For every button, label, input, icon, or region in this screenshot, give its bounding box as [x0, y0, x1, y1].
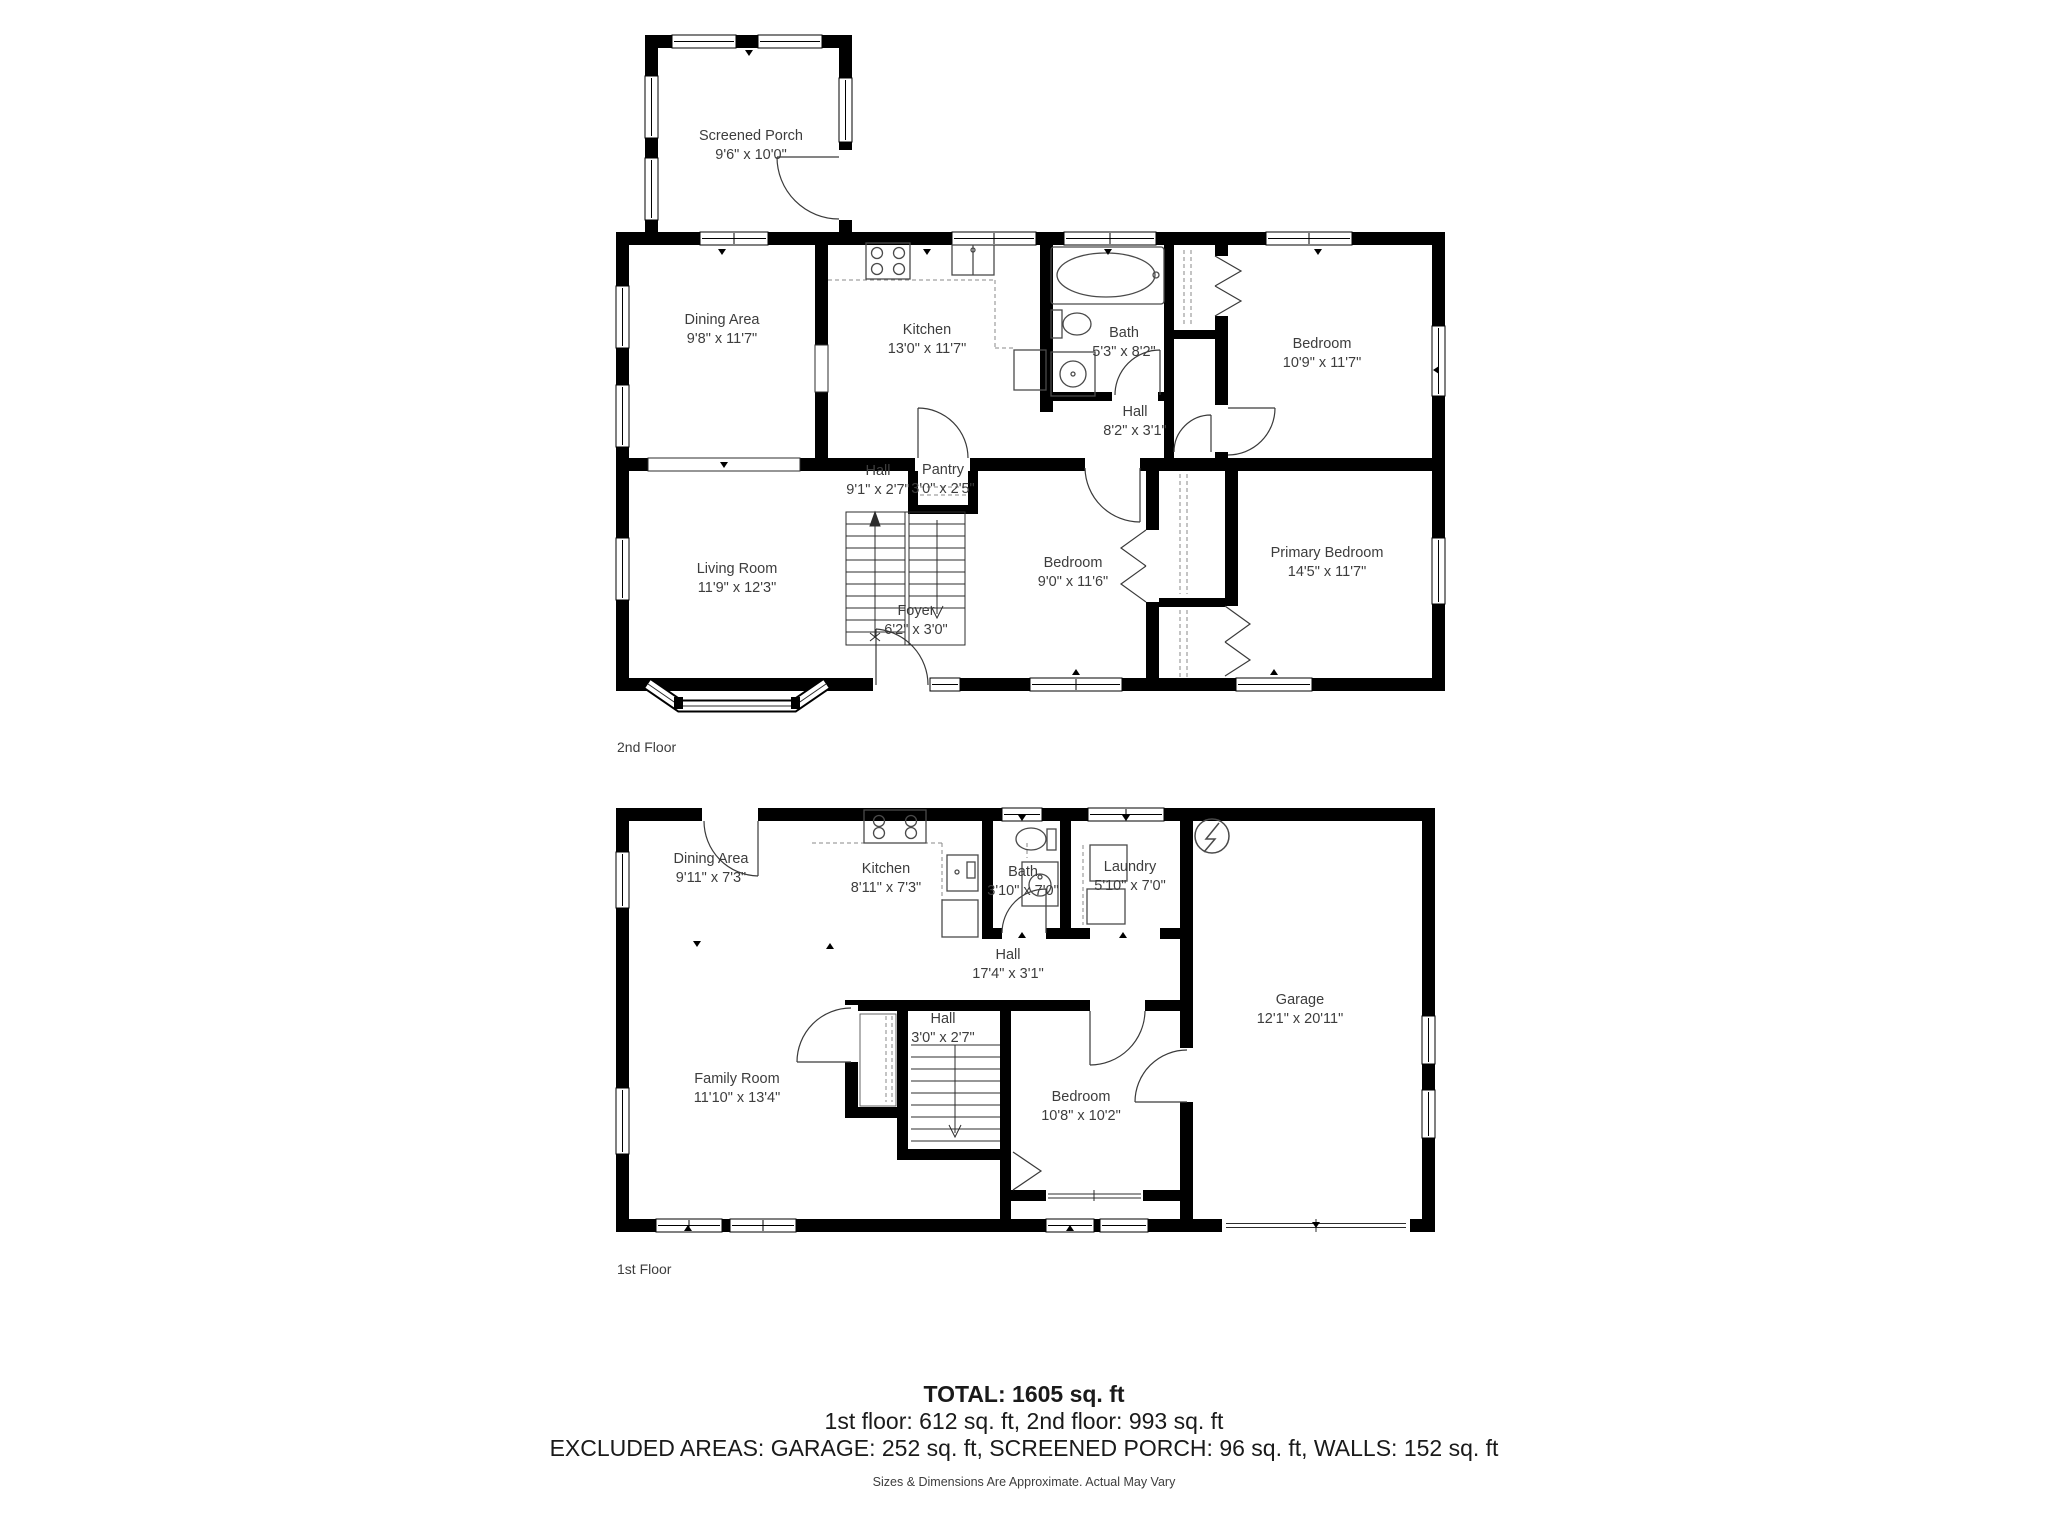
floor-areas: 1st floor: 612 sq. ft, 2nd floor: 993 sq… — [0, 1408, 2048, 1434]
room-label-kitchen-1: Kitchen 8'11" x 7'3" — [851, 860, 921, 898]
room-label-dining-area-1: Dining Area 9'11" x 7'3" — [674, 850, 749, 888]
room-label-dining-area-2: Dining Area 9'8" x 11'7" — [685, 311, 760, 349]
room-label-living-room: Living Room 11'9" x 12'3" — [697, 560, 778, 598]
floor-plan-drawing — [0, 0, 2048, 1536]
excluded-areas: EXCLUDED AREAS: GARAGE: 252 sq. ft, SCRE… — [0, 1435, 2048, 1461]
area-summary: TOTAL: 1605 sq. ft 1st floor: 612 sq. ft… — [0, 1381, 2048, 1489]
room-label-family-room: Family Room 11'10" x 13'4" — [694, 1070, 781, 1108]
room-label-bath-1: Bath 3'10" x 7'0" — [987, 863, 1058, 901]
floor1-closet-bifold — [1013, 1152, 1041, 1190]
room-label-hall-small-1: Hall 3'0" x 2'7" — [911, 1010, 974, 1048]
floor1-stairs — [911, 1045, 1000, 1141]
floor-plan-page: Screened Porch 9'6" x 10'0" Dining Area … — [0, 0, 2048, 1536]
hall-closet — [860, 1014, 896, 1106]
room-label-primary-bedroom: Primary Bedroom 14'5" x 11'7" — [1271, 544, 1384, 582]
room-label-hall-stairs-2: Hall 9'1" x 2'7" — [846, 462, 909, 500]
room-label-laundry: Laundry 5'10" x 7'0" — [1094, 858, 1165, 896]
room-label-bedroom-1: Bedroom 10'8" x 10'2" — [1041, 1088, 1121, 1126]
room-label-hall-corridor-1: Hall 17'4" x 3'1" — [972, 946, 1043, 984]
room-label-hall-upper-2: Hall 8'2" x 3'1" — [1103, 403, 1166, 441]
room-label-kitchen-2: Kitchen 13'0" x 11'7" — [888, 321, 966, 359]
floor2-caption: 2nd Floor — [617, 739, 676, 755]
room-label-pantry: Pantry 3'0" x 2'5" — [911, 461, 974, 499]
room-label-garage: Garage 12'1" x 20'11" — [1257, 991, 1344, 1029]
room-label-screened-porch: Screened Porch 9'6" x 10'0" — [699, 127, 803, 165]
disclaimer: Sizes & Dimensions Are Approximate. Actu… — [0, 1475, 2048, 1489]
floor2-fixtures — [866, 243, 1164, 396]
room-label-bedroom-middle: Bedroom 9'0" x 11'6" — [1038, 554, 1108, 592]
room-label-foyer: Foyer 6'2" x 3'0" — [884, 602, 947, 640]
room-label-bedroom-2: Bedroom 10'9" x 11'7" — [1283, 335, 1361, 373]
total-area: TOTAL: 1605 sq. ft — [0, 1381, 2048, 1407]
room-label-bath-2: Bath 5'3" x 8'2" — [1092, 324, 1155, 362]
floor1-caption: 1st Floor — [617, 1261, 671, 1277]
